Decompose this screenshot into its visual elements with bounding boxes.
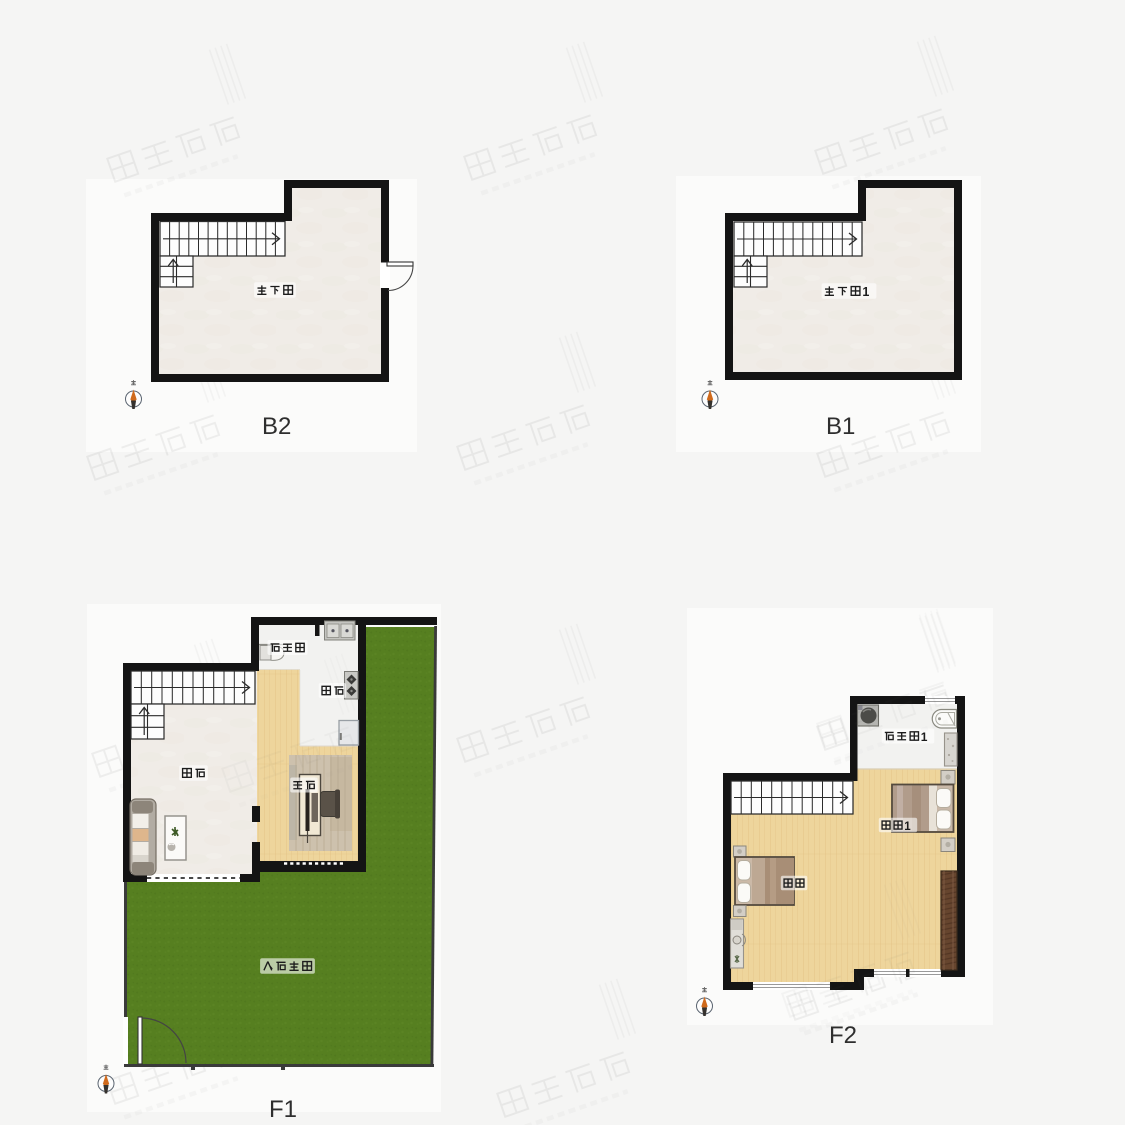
svg-text:B2: B2 (262, 413, 291, 440)
svg-text:F2: F2 (829, 1022, 857, 1049)
svg-text:1: 1 (904, 821, 911, 833)
svg-text:B1: B1 (826, 413, 855, 440)
svg-text:F1: F1 (269, 1096, 297, 1123)
svg-text:1: 1 (862, 285, 869, 299)
